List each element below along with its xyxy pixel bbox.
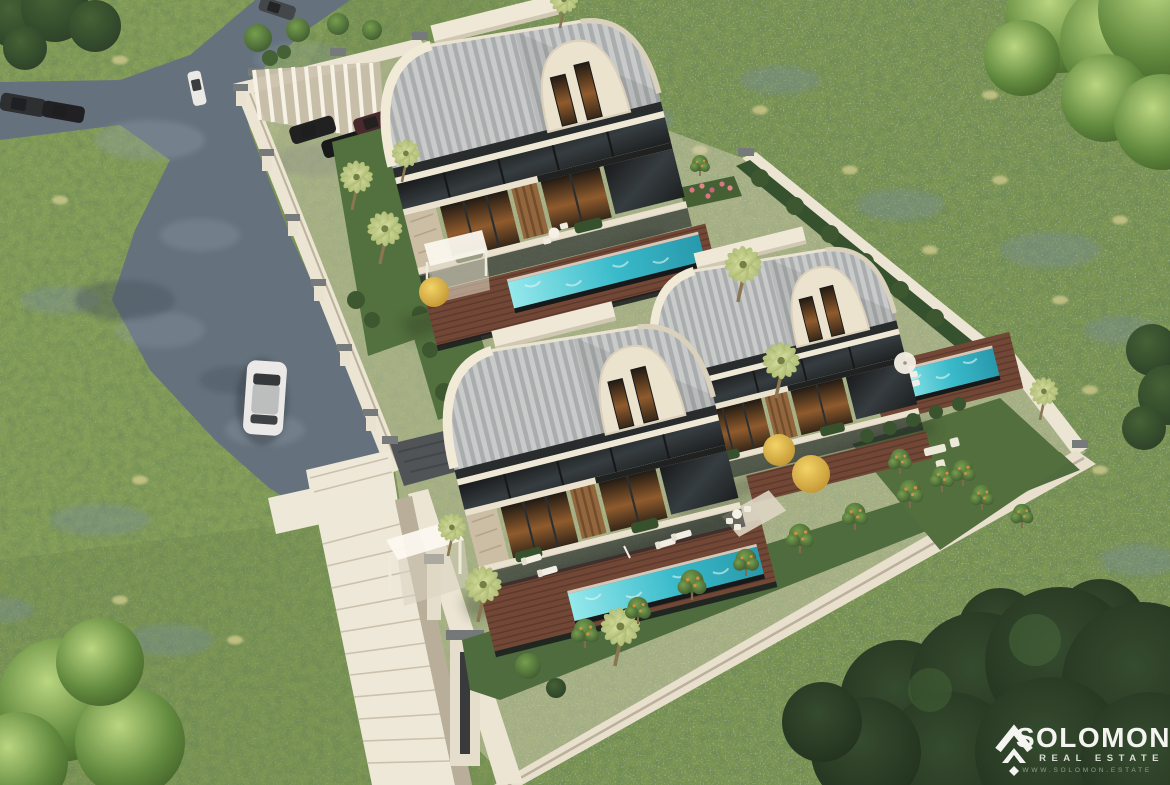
logo-tagline-text: REAL ESTATE xyxy=(1039,753,1164,764)
sunlight-tint xyxy=(0,0,1170,785)
render-canvas: SOLOMON REAL ESTATE WWW.SOLOMON.ESTATE xyxy=(0,0,1170,785)
logo-website-text: WWW.SOLOMON.ESTATE xyxy=(1022,767,1152,774)
logo-brand-text: SOLOMON xyxy=(1016,722,1170,753)
solomon-logo: SOLOMON REAL ESTATE WWW.SOLOMON.ESTATE xyxy=(998,722,1170,776)
